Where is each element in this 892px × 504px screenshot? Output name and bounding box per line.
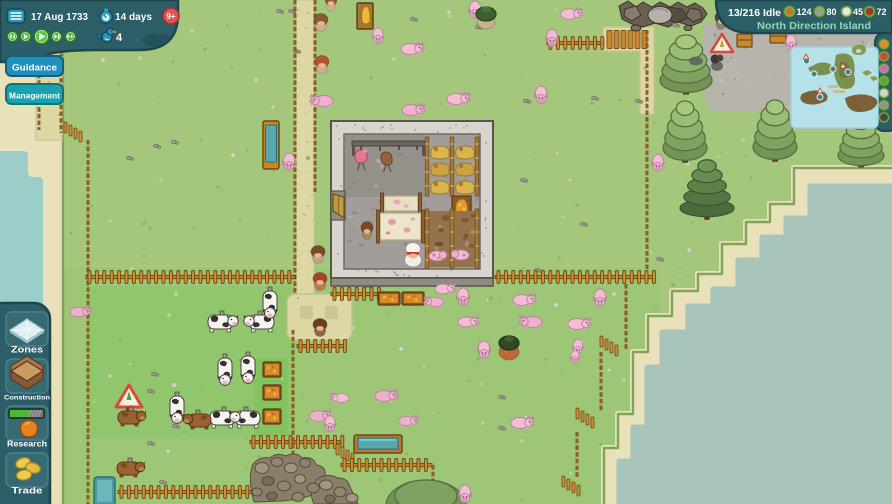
svg-text:4: 4 bbox=[116, 32, 123, 44]
svg-text:Management: Management bbox=[9, 91, 60, 101]
svg-text:Zones: Zones bbox=[11, 345, 43, 355]
svg-text:Research: Research bbox=[7, 439, 47, 449]
svg-text:9+: 9+ bbox=[166, 12, 175, 21]
svg-text:124: 124 bbox=[797, 7, 813, 18]
svg-text:Construction: Construction bbox=[4, 395, 50, 402]
svg-text:Guidance: Guidance bbox=[12, 63, 57, 74]
svg-text:14 days: 14 days bbox=[115, 11, 152, 23]
svg-text:13/216 Idle: 13/216 Idle bbox=[728, 7, 781, 19]
svg-text:45: 45 bbox=[853, 7, 864, 18]
svg-text:17 Aug 1733: 17 Aug 1733 bbox=[31, 11, 88, 23]
svg-text:72: 72 bbox=[877, 7, 887, 18]
svg-text:North Direction Island: North Direction Island bbox=[757, 21, 871, 32]
svg-text:Trade: Trade bbox=[12, 486, 43, 496]
svg-text:80: 80 bbox=[827, 7, 837, 18]
